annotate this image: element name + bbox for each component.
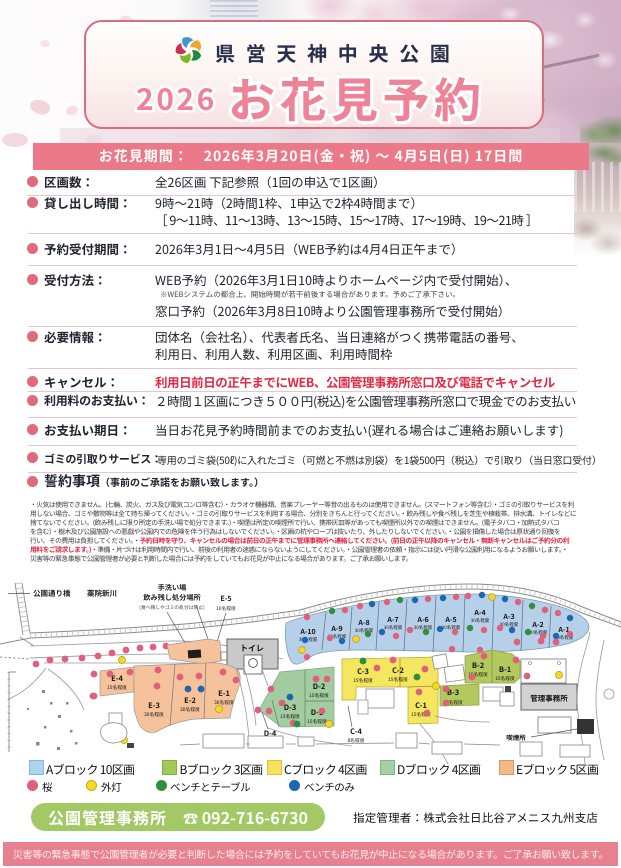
svg-text:30名程度: 30名程度 [144, 711, 164, 718]
svg-text:A-9: A-9 [330, 624, 342, 634]
svg-text:15名程度: 15名程度 [388, 676, 408, 683]
svg-text:E-2: E-2 [184, 695, 196, 706]
svg-text:C-2: C-2 [392, 665, 404, 676]
svg-text:30名程度: 30名程度 [414, 625, 433, 631]
svg-text:D-2: D-2 [313, 681, 326, 692]
svg-text:A-6: A-6 [416, 615, 428, 625]
svg-text:B-1: B-1 [499, 664, 511, 675]
svg-text:C-4: C-4 [350, 726, 362, 737]
svg-text:A-5: A-5 [444, 615, 456, 625]
svg-text:15名程度: 15名程度 [107, 684, 127, 691]
svg-text:15名程度: 15名程度 [495, 675, 515, 682]
svg-text:D-3: D-3 [284, 702, 297, 713]
svg-text:A-4: A-4 [473, 608, 485, 618]
svg-text:30名程度: 30名程度 [471, 618, 490, 624]
svg-text:C-1: C-1 [415, 700, 427, 711]
svg-text:A-8: A-8 [357, 618, 369, 628]
svg-text:30名程度: 30名程度 [214, 699, 234, 706]
svg-text:30名程度: 30名程度 [384, 625, 403, 631]
svg-text:15名程度: 15名程度 [353, 677, 373, 684]
svg-text:30名程度: 30名程度 [180, 706, 200, 713]
svg-text:飲み残し処分場所: 飲み残し処分場所 [143, 593, 201, 603]
svg-text:公園通り橋: 公園通り橋 [33, 588, 71, 599]
svg-text:A-3: A-3 [502, 612, 514, 622]
svg-text:15名程度: 15名程度 [309, 692, 329, 699]
svg-text:E-5: E-5 [220, 594, 231, 604]
svg-text:15名程度: 15名程度 [307, 718, 327, 725]
svg-text:8名程度: 8名程度 [347, 737, 364, 744]
svg-text:30名程度: 30名程度 [299, 637, 318, 643]
svg-text:薬院新川: 薬院新川 [87, 588, 117, 599]
svg-text:15名程度: 15名程度 [280, 713, 300, 720]
svg-text:手洗い場: 手洗い場 [158, 583, 187, 593]
svg-text:30名程度: 30名程度 [442, 625, 461, 631]
svg-text:(食べ残しやゴミの処分は禁止): (食べ残しやゴミの処分は禁止) [139, 604, 205, 611]
svg-text:A-10: A-10 [299, 627, 315, 637]
svg-text:トイレ: トイレ [240, 643, 264, 654]
svg-text:A-7: A-7 [386, 615, 398, 625]
svg-text:E-3: E-3 [148, 700, 160, 711]
svg-text:E-1: E-1 [218, 688, 230, 699]
svg-text:管理事務所: 管理事務所 [530, 693, 568, 704]
svg-text:A-2: A-2 [531, 620, 543, 630]
svg-text:10名程度: 10名程度 [216, 605, 236, 612]
svg-text:C-3: C-3 [357, 666, 369, 677]
svg-text:喫煙所: 喫煙所 [506, 732, 526, 742]
svg-text:B-2: B-2 [472, 660, 485, 671]
